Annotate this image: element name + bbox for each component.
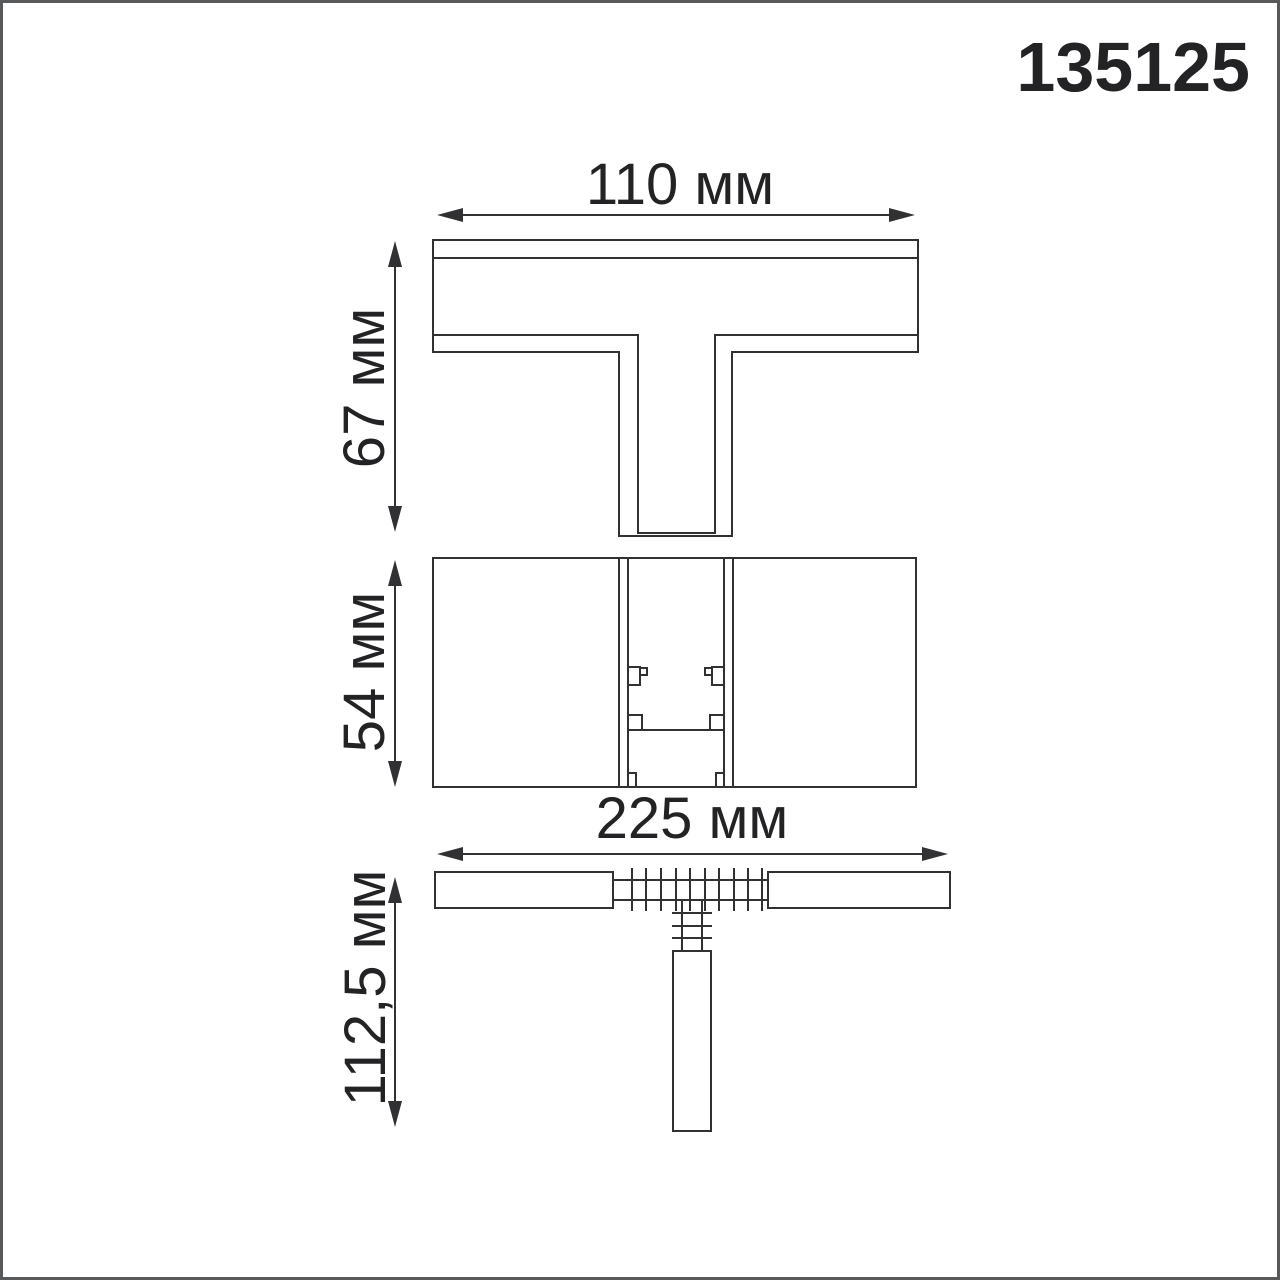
view-top-t-profile [433,240,918,536]
arrowhead-down-icon [388,1101,402,1127]
arrowhead-right-icon [889,208,915,222]
front-clip-upper-left-tab [640,668,647,675]
plan-stem-track [673,951,711,1131]
front-clip-upper-right [712,667,724,685]
arrowhead-down-icon [388,506,402,532]
dim-plan-depth: 112,5 мм [333,870,402,1127]
arrowhead-left-icon [437,847,463,861]
dim-plan-width: 225 мм [437,786,948,861]
product-code: 135125 [1016,28,1250,106]
arrowhead-down-icon [388,761,402,787]
dim-plan-width-label: 225 мм [596,786,789,851]
plan-right-track [768,872,950,908]
arrowhead-left-icon [437,208,463,222]
view-plan [435,868,950,1131]
view-front-elevation [433,558,916,787]
front-clip-upper-right-tab [705,668,712,675]
t-outline [433,240,918,536]
dim-top-height: 67 мм [332,241,402,532]
arrowhead-up-icon [388,241,402,267]
arrowhead-right-icon [922,847,948,861]
dim-top-height-label: 67 мм [332,308,397,468]
dim-front-height: 54 мм [332,560,402,787]
front-clip-bottom-right [716,773,724,787]
technical-drawing: 135125 110 мм 67 мм 54 мм [0,0,1280,1280]
plan-band-ribs [632,868,762,911]
dim-front-height-label: 54 мм [332,592,397,752]
dim-top-width: 110 мм [437,152,915,222]
plan-neck-ribs [672,913,712,938]
t-inner-wall [433,335,918,533]
plan-left-track [435,872,613,908]
front-clip-upper-left [628,667,640,685]
front-clip-mid-right [710,715,724,730]
arrowhead-up-icon [388,560,402,586]
front-clip-bottom-left [628,773,636,787]
dim-plan-depth-label: 112,5 мм [333,870,398,1107]
dim-top-width-label: 110 мм [586,152,774,217]
front-clip-mid-left [628,715,642,730]
front-body [433,558,916,787]
